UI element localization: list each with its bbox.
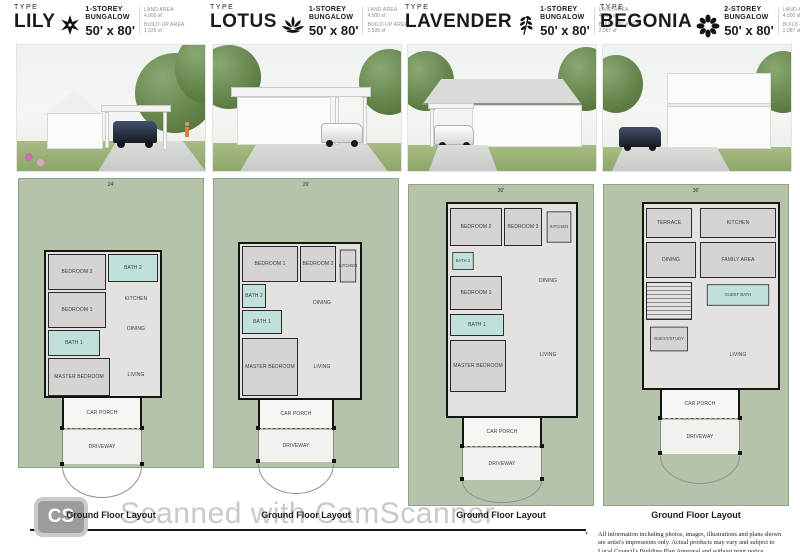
room-bath: BATH 1 xyxy=(450,314,504,336)
car-porch-label: CAR PORCH xyxy=(87,410,118,416)
room: TERRACE xyxy=(646,208,692,238)
room-bath: BATH 2 xyxy=(108,254,158,282)
house-wall xyxy=(47,113,103,149)
room: BEDROOM 1 xyxy=(450,276,502,310)
driveway-photo xyxy=(611,147,731,172)
floor-band xyxy=(667,103,771,107)
storey-label: 1-STOREY xyxy=(309,6,346,13)
post xyxy=(738,416,742,420)
plan-width-dim: 30' xyxy=(408,188,594,194)
porch-dash-line xyxy=(258,428,334,429)
gate-arc-left xyxy=(62,466,102,498)
disclaimer: * All information including photos, imag… xyxy=(586,531,794,552)
room: FAMILY AREA xyxy=(700,242,776,278)
storey-label: 2-STOREY xyxy=(724,6,761,13)
driveway-photo xyxy=(428,145,498,172)
gate-arc-right xyxy=(296,464,334,494)
room-bath: BATH 1 xyxy=(242,310,282,334)
room-label: DINING xyxy=(118,326,154,332)
plan-caption-lavender: Ground Floor Layout xyxy=(408,510,594,520)
post xyxy=(256,426,260,430)
plan-caption-lotus: Ground Floor Layout xyxy=(213,510,399,520)
type-header-begonia: TYPE BEGONIA 2-STOREY BUNGALOW xyxy=(600,4,792,42)
room: MASTER BEDROOM xyxy=(242,338,298,396)
gate-arc-right xyxy=(102,466,142,498)
driveway: DRIVEWAY xyxy=(462,448,542,480)
room-bath: GUEST BATH xyxy=(707,284,769,305)
porch-dash-line xyxy=(660,418,740,419)
post xyxy=(540,444,544,448)
flower-bush xyxy=(37,159,44,166)
house-wall xyxy=(472,105,582,147)
driveway-label: DRIVEWAY xyxy=(283,443,310,449)
driveway: DRIVEWAY xyxy=(258,430,334,462)
lower-window xyxy=(721,115,761,137)
porch-dash-line xyxy=(462,446,542,447)
car-porch: CAR PORCH xyxy=(62,398,142,428)
person-head xyxy=(185,122,189,126)
post xyxy=(256,459,260,463)
room: KITCHEN xyxy=(340,250,356,283)
type-name-lotus: LOTUS xyxy=(210,12,277,31)
post xyxy=(460,444,464,448)
category-label: BUNGALOW xyxy=(724,14,768,21)
palm-tree xyxy=(602,55,643,113)
plan-width-dim: 26' xyxy=(213,182,399,188)
room: DINING xyxy=(646,242,696,278)
post xyxy=(60,426,64,430)
room-label: KITCHEN xyxy=(118,296,154,302)
car-porch: CAR PORCH xyxy=(660,390,740,418)
storey-label: 1-STOREY xyxy=(540,6,577,13)
land-area-value: 4,000 sf xyxy=(367,13,408,19)
bush xyxy=(19,161,28,170)
post xyxy=(140,426,144,430)
driveway-label: DRIVEWAY xyxy=(89,444,116,450)
wheel xyxy=(145,140,153,148)
car-porch-label: CAR PORCH xyxy=(487,429,518,435)
plan-caption-lily: Ground Floor Layout xyxy=(18,510,204,520)
wheel xyxy=(351,140,358,147)
car-porch-label: CAR PORCH xyxy=(685,401,716,407)
post xyxy=(332,459,336,463)
room-label: DINING xyxy=(528,278,568,284)
hip-roof xyxy=(422,79,582,105)
room-label: LIVING xyxy=(118,372,154,378)
brochure-page: TYPE LILY 1-STOREY BUNGALOW 50' x 80' LA… xyxy=(0,0,800,552)
driveway-label: DRIVEWAY xyxy=(489,461,516,467)
buildup-area-value: 1,599 sf xyxy=(367,28,408,34)
window xyxy=(247,107,265,129)
carport-column xyxy=(163,112,167,150)
room: BEDROOM 2 xyxy=(450,208,502,246)
wheel xyxy=(649,144,656,151)
person xyxy=(185,127,189,137)
room: KITCHEN xyxy=(547,211,572,242)
type-name-begonia: BEGONIA xyxy=(600,12,692,31)
room-bath: BATH 2 xyxy=(242,284,266,308)
lavender-sprig-icon xyxy=(516,14,536,41)
driveway: DRIVEWAY xyxy=(62,430,142,464)
driveway: DRIVEWAY xyxy=(660,420,740,454)
lotus-photo xyxy=(212,44,402,172)
carport-canopy xyxy=(428,103,474,109)
lot-size: 50' x 80' xyxy=(309,23,359,38)
type-name-lavender: LAVENDER xyxy=(405,12,512,31)
room-label: LIVING xyxy=(304,364,340,370)
lot-size: 50' x 80' xyxy=(540,23,590,38)
room: BEDROOM 2 xyxy=(300,246,336,282)
carport-canopy xyxy=(101,105,171,112)
gate-arc-left xyxy=(258,464,296,494)
room-bath: BATH 2 xyxy=(452,252,473,270)
room-label: LIVING xyxy=(528,352,568,358)
room: GUEST/STUDY xyxy=(650,327,688,352)
lavender-photo xyxy=(407,44,597,172)
staircase xyxy=(646,282,692,320)
room: BEDROOM 3 xyxy=(504,208,542,246)
wheel xyxy=(326,140,333,147)
plan-width-dim: 36' xyxy=(603,188,789,194)
car-porch: CAR PORCH xyxy=(258,400,334,428)
post xyxy=(658,416,662,420)
type-header-lily: TYPE LILY 1-STOREY BUNGALOW 50' x 80' LA… xyxy=(14,4,204,42)
flower-bush xyxy=(25,153,33,161)
category-label: BUNGALOW xyxy=(85,14,129,21)
carport-column xyxy=(105,112,109,148)
land-area-value: 4,000 sf xyxy=(783,13,800,19)
land-area-value: 4,000 sf xyxy=(144,13,185,19)
begonia-photo xyxy=(602,44,792,172)
room: BEDROOM 1 xyxy=(242,246,298,282)
buildup-area-value: 1,339 sf xyxy=(144,28,185,34)
category-label: BUNGALOW xyxy=(540,14,584,21)
type-label: TYPE xyxy=(210,4,277,11)
room-label: DINING xyxy=(304,300,340,306)
flat-roof xyxy=(231,87,371,97)
plan-caption-begonia: Ground Floor Layout xyxy=(603,510,789,520)
lotus-flower-icon xyxy=(281,14,305,41)
upper-window xyxy=(675,81,709,95)
upper-window xyxy=(721,81,755,95)
post xyxy=(658,451,662,455)
plan-width-dim: 24' xyxy=(18,182,204,188)
type-name-lily: LILY xyxy=(14,12,55,31)
type-label: TYPE xyxy=(405,4,512,11)
room: MASTER BEDROOM xyxy=(48,358,110,396)
lot-size: 50' x 80' xyxy=(724,23,774,38)
type-header-lavender: TYPE LAVENDER 1-STOREY BUNGALOW 50' x 80… xyxy=(405,4,595,42)
room: MASTER BEDROOM xyxy=(450,340,506,392)
car-porch-label: CAR PORCH xyxy=(281,411,312,417)
room-label: LIVING xyxy=(718,352,758,358)
room-bath: BATH 1 xyxy=(48,330,100,356)
lily-flower-icon xyxy=(59,14,81,41)
disclaimer-line: All information including photos, images… xyxy=(598,531,794,539)
room: BEDROOM 1 xyxy=(48,292,106,328)
lot-size: 50' x 80' xyxy=(85,23,135,38)
room: BEDROOM 2 xyxy=(48,254,106,290)
post xyxy=(738,451,742,455)
post xyxy=(332,426,336,430)
car-porch: CAR PORCH xyxy=(462,418,542,446)
type-header-lotus: TYPE LOTUS 1-STOREY BUNGALOW 50' x 80' L… xyxy=(210,4,400,42)
category-label: BUNGALOW xyxy=(309,14,353,21)
buildup-area-value: 2,087 sf xyxy=(783,28,800,34)
type-label: TYPE xyxy=(14,4,55,11)
lily-photo xyxy=(16,44,206,172)
wheel xyxy=(117,140,125,148)
porch-column xyxy=(363,97,367,145)
disclaimer-marker: * xyxy=(585,531,588,539)
room: KITCHEN xyxy=(700,208,776,238)
storey-label: 1-STOREY xyxy=(85,6,122,13)
window xyxy=(528,115,548,135)
roof xyxy=(43,91,105,115)
wheel xyxy=(624,144,631,151)
disclaimer-line: are artist's impressions only. Actual pr… xyxy=(598,539,794,547)
driveway-photo xyxy=(239,143,389,172)
type-label: TYPE xyxy=(600,4,692,11)
begonia-flower-icon xyxy=(696,14,720,43)
porch-dash-line xyxy=(62,428,142,429)
driveway-label: DRIVEWAY xyxy=(687,434,714,440)
disclaimer-line: Local Council's Building Plan Approval a… xyxy=(598,548,794,552)
